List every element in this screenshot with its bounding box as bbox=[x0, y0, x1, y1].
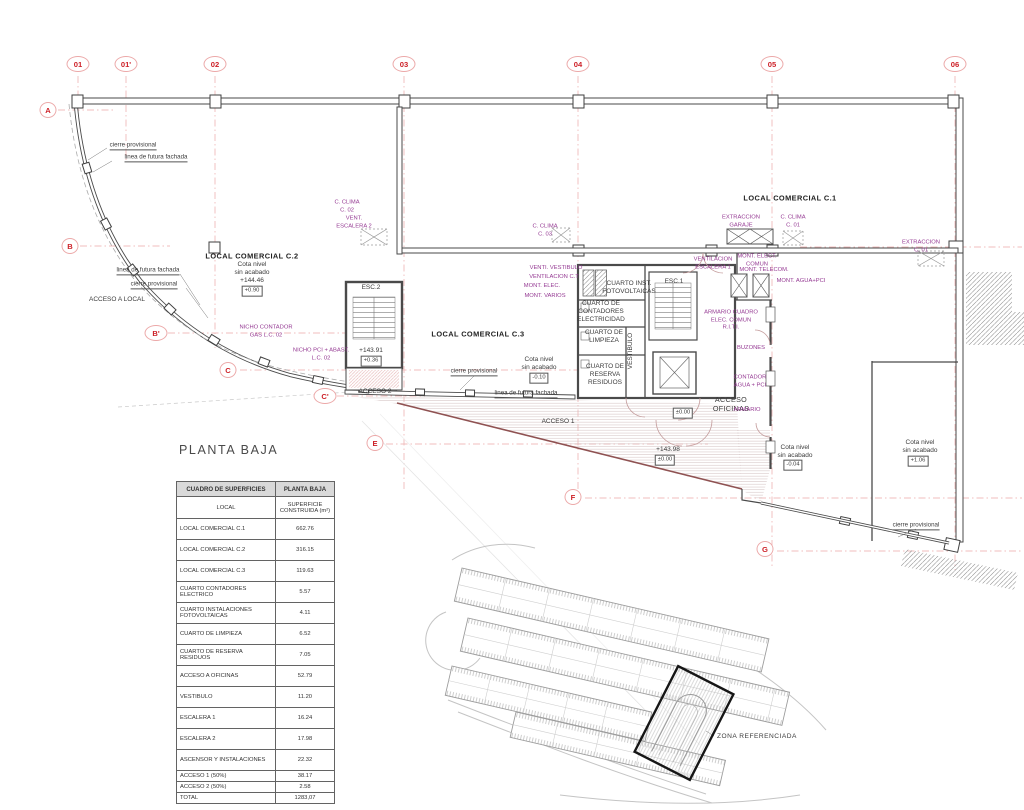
table-row: VESTIBULO11.20 bbox=[177, 687, 335, 708]
axis-marker-03: 03 bbox=[393, 56, 416, 72]
table-row: LOCAL COMERCIAL C.1662.76 bbox=[177, 519, 335, 540]
table-row: ACCESO A OFICINAS52.79 bbox=[177, 666, 335, 687]
table-cell-local: ESCALERA 2 bbox=[177, 729, 276, 750]
plan-label: ESC.1 bbox=[665, 278, 684, 286]
plan-label: ±0.00 bbox=[655, 455, 675, 466]
plan-label: CUARTO DE LIMPIEZA bbox=[585, 329, 623, 345]
plan-label: EXTRACCION C. 01 bbox=[902, 239, 940, 254]
plan-label: Cota nivel sin acabado bbox=[521, 356, 556, 372]
table-cell-local: ACCESO A OFICINAS bbox=[177, 666, 276, 687]
table-cell-local: ESCALERA 1 bbox=[177, 708, 276, 729]
plan-label: Cota nivel sin acabado +144.46 bbox=[234, 261, 269, 285]
table-cell-surface: 52.79 bbox=[276, 666, 335, 687]
plan-title: PLANTA BAJA bbox=[179, 443, 278, 457]
plan-label: linea de futura fachada bbox=[125, 153, 188, 162]
plan-label: MONT. AGUA+PCI bbox=[777, 278, 826, 286]
table-subheader-row: LOCAL SUPERFICIE CONSTRUIDA (m²) bbox=[177, 497, 335, 519]
axis-marker-06: 06 bbox=[944, 56, 967, 72]
table-cell-local: CUARTO DE LIMPIEZA bbox=[177, 624, 276, 645]
plan-label: EXTRACCION GARAJE bbox=[722, 214, 760, 229]
axis-marker-c: C bbox=[220, 362, 237, 378]
table-row: CUARTO INSTALACIONES FOTOVOLTAICAS4.11 bbox=[177, 603, 335, 624]
plan-label: ±0.00 bbox=[673, 408, 693, 419]
plan-label: cierre provisional bbox=[110, 141, 157, 150]
table-row: ESCALERA 217.98 bbox=[177, 729, 335, 750]
table-cell-surface: 11.20 bbox=[276, 687, 335, 708]
plan-label: +0.90 bbox=[242, 286, 263, 297]
table-row: ESCALERA 116.24 bbox=[177, 708, 335, 729]
table-header-left: CUADRO DE SUPERFICIES bbox=[177, 482, 276, 497]
plan-label: linea de futura fachada bbox=[117, 266, 180, 275]
plan-label: linea de futura fachada bbox=[495, 389, 558, 398]
plan-label: MONT. VARIOS bbox=[524, 293, 565, 301]
table-row: TOTAL1283,07 bbox=[177, 793, 335, 804]
table-cell-surface: 1283,07 bbox=[276, 793, 335, 804]
table-header-right: PLANTA BAJA bbox=[276, 482, 335, 497]
table-cell-surface: 38.17 bbox=[276, 771, 335, 782]
axis-marker-e: E bbox=[367, 435, 384, 451]
plan-label: LOCAL COMERCIAL C.1 bbox=[743, 193, 836, 202]
table-subheader-left: LOCAL bbox=[177, 497, 276, 519]
table-row: CUARTO DE LIMPIEZA6.52 bbox=[177, 624, 335, 645]
table-row: ACCESO 2 (50%)2.58 bbox=[177, 782, 335, 793]
plan-label: ARMARIO CUADRO ELEC. COMUN R.I.T.I. bbox=[704, 310, 758, 333]
axis-marker-01p: 01' bbox=[115, 56, 138, 72]
table-cell-local: ACCESO 2 (50%) bbox=[177, 782, 276, 793]
table-row: ACCESO 1 (50%)38.17 bbox=[177, 771, 335, 782]
plan-label: CUARTO INST. FOTOVOLTAICAS bbox=[602, 280, 655, 296]
table-row: CUARTO DE RESERVA RESIDUOS7.05 bbox=[177, 645, 335, 666]
axis-marker-g: G bbox=[757, 541, 774, 557]
interior-walls bbox=[346, 107, 958, 541]
table-cell-local: ASCENSOR Y INSTALACIONES bbox=[177, 750, 276, 771]
plan-label: ACCESO A LOCAL bbox=[89, 296, 145, 304]
table-cell-surface: 16.24 bbox=[276, 708, 335, 729]
site-plan bbox=[426, 544, 826, 803]
plan-label: Cota nivel sin acabado bbox=[902, 439, 937, 455]
plan-label: MONT. ELEC. bbox=[524, 283, 560, 291]
plan-label: VENT. ESCALERA 2 bbox=[336, 215, 371, 230]
floor-plan-drawing: PLANTA BAJA ZONA REFERENCIADA 0101'02030… bbox=[0, 0, 1024, 810]
plan-label: VENTI. VESTIBULO bbox=[530, 265, 583, 273]
axis-marker-cp: C' bbox=[314, 388, 337, 404]
table-header-row: CUADRO DE SUPERFICIES PLANTA BAJA bbox=[177, 482, 335, 497]
axis-marker-f: F bbox=[565, 489, 582, 505]
referenced-zone-caption: ZONA REFERENCIADA bbox=[717, 733, 797, 740]
axis-marker-05: 05 bbox=[761, 56, 784, 72]
plan-linework bbox=[0, 0, 1024, 810]
plan-label: ACCESO 2 bbox=[359, 388, 392, 396]
table-cell-local: VESTIBULO bbox=[177, 687, 276, 708]
plan-label: VESTIBULO bbox=[627, 333, 635, 369]
table-cell-surface: 5.57 bbox=[276, 582, 335, 603]
plan-label: cierre provisional bbox=[131, 280, 178, 289]
axis-marker-01: 01 bbox=[67, 56, 90, 72]
table-subheader-right: SUPERFICIE CONSTRUIDA (m²) bbox=[276, 497, 335, 519]
table-cell-local: TOTAL bbox=[177, 793, 276, 804]
table-cell-local: ACCESO 1 (50%) bbox=[177, 771, 276, 782]
table-cell-local: CUARTO DE RESERVA RESIDUOS bbox=[177, 645, 276, 666]
table-cell-surface: 22.32 bbox=[276, 750, 335, 771]
plan-label: cierre provisional bbox=[893, 521, 940, 530]
plan-label: ACCESO 1 bbox=[542, 418, 575, 426]
plan-label: C. CLIMA C. 02 bbox=[334, 199, 359, 214]
plan-label: +1.06 bbox=[908, 456, 929, 467]
plan-label: Cota nivel sin acabado bbox=[777, 444, 812, 460]
table-cell-local: CUARTO INSTALACIONES FOTOVOLTAICAS bbox=[177, 603, 276, 624]
table-cell-local: LOCAL COMERCIAL C.2 bbox=[177, 540, 276, 561]
plan-label: ARMARIO bbox=[733, 407, 760, 415]
table-cell-surface: 662.76 bbox=[276, 519, 335, 540]
plan-label: +143.91 bbox=[359, 347, 383, 355]
table-cell-surface: 6.52 bbox=[276, 624, 335, 645]
vent-boxes bbox=[361, 228, 944, 266]
plan-label: -0.10 bbox=[529, 373, 548, 384]
plan-label: VENTILACION C.T bbox=[529, 274, 579, 282]
plan-label: +0.36 bbox=[361, 356, 382, 367]
axis-marker-a: A bbox=[40, 102, 57, 118]
plan-label: BUZONES bbox=[737, 345, 765, 353]
plan-label: CUARTO DE RESERVA RESIDUOS bbox=[586, 363, 624, 387]
table-cell-surface: 2.58 bbox=[276, 782, 335, 793]
table-cell-local: LOCAL COMERCIAL C.3 bbox=[177, 561, 276, 582]
axis-marker-02: 02 bbox=[204, 56, 227, 72]
plan-label: ESC.2 bbox=[362, 284, 381, 292]
plan-label: CONTADOR AGUA + PCI bbox=[734, 374, 767, 389]
table-cell-surface: 4.11 bbox=[276, 603, 335, 624]
surface-areas-table: CUADRO DE SUPERFICIES PLANTA BAJA LOCAL … bbox=[176, 481, 335, 804]
plan-label: LOCAL COMERCIAL C.3 bbox=[431, 329, 524, 338]
axis-marker-b: B bbox=[62, 238, 79, 254]
axis-marker-bp: B' bbox=[145, 325, 168, 341]
plan-label: C. CLIMA C. 01 bbox=[780, 214, 805, 229]
table-cell-surface: 119.63 bbox=[276, 561, 335, 582]
table-cell-surface: 316.15 bbox=[276, 540, 335, 561]
table-row: LOCAL COMERCIAL C.2316.15 bbox=[177, 540, 335, 561]
plan-label: -0.04 bbox=[783, 460, 802, 471]
table-cell-local: CUARTO CONTADORES ELECTRICO bbox=[177, 582, 276, 603]
axis-marker-04: 04 bbox=[567, 56, 590, 72]
plan-label: MONT. TELECOM. bbox=[739, 267, 788, 275]
table-cell-surface: 7.05 bbox=[276, 645, 335, 666]
plan-label: NICHO CONTADOR GAS L.C. 02 bbox=[239, 324, 292, 339]
plan-label: cierre provisional bbox=[451, 367, 498, 376]
plan-label: +143.98 bbox=[656, 446, 680, 454]
plan-label: C. CLIMA C. 03 bbox=[532, 223, 557, 238]
plan-label: LOCAL COMERCIAL C.2 bbox=[205, 251, 298, 260]
plan-label: NICHO PCI + ABAST. L.C. 02 bbox=[293, 347, 349, 362]
outer-walls bbox=[69, 98, 963, 542]
plan-label: VENTILACION ESCALERA 1 bbox=[694, 256, 733, 271]
table-row: CUARTO CONTADORES ELECTRICO5.57 bbox=[177, 582, 335, 603]
table-cell-local: LOCAL COMERCIAL C.1 bbox=[177, 519, 276, 540]
table-row: ASCENSOR Y INSTALACIONES22.32 bbox=[177, 750, 335, 771]
plan-label: CUARTO DE CONTADORES ELECTRICIDAD bbox=[577, 300, 625, 324]
table-cell-surface: 17.98 bbox=[276, 729, 335, 750]
table-row: LOCAL COMERCIAL C.3119.63 bbox=[177, 561, 335, 582]
